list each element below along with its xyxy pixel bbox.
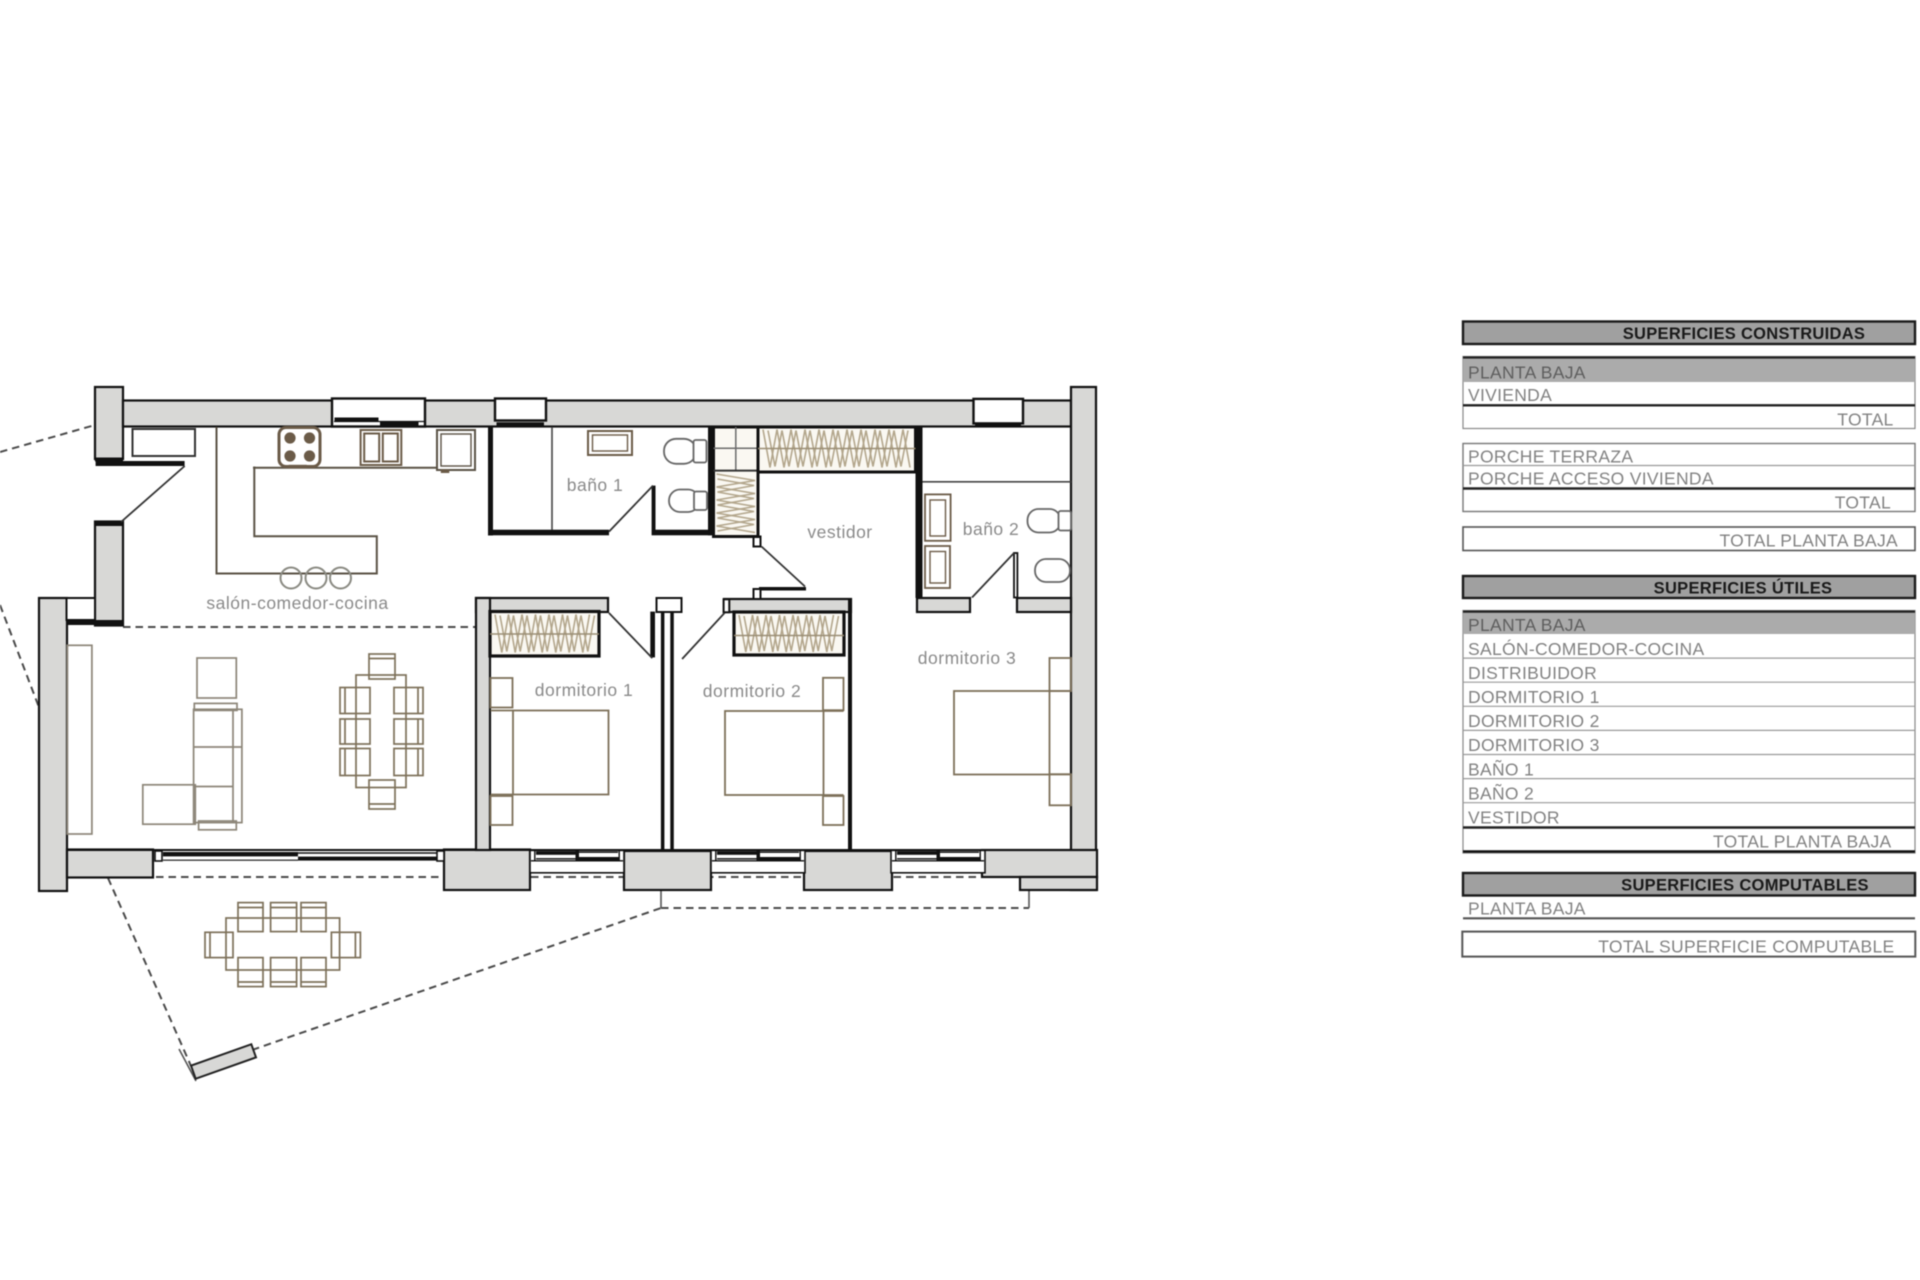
svg-text:BAÑO 1: BAÑO 1	[1468, 759, 1534, 780]
svg-text:TOTAL PLANTA BAJA: TOTAL PLANTA BAJA	[1719, 531, 1898, 551]
svg-text:vestidor: vestidor	[807, 522, 872, 542]
svg-text:TOTAL SUPERFICIE COMPUTABLE: TOTAL SUPERFICIE COMPUTABLE	[1598, 937, 1894, 957]
svg-text:PLANTA BAJA: PLANTA BAJA	[1468, 899, 1586, 919]
svg-text:dormitorio 1: dormitorio 1	[535, 680, 633, 700]
svg-text:dormitorio 2: dormitorio 2	[703, 681, 801, 701]
svg-text:SUPERFICIES CONSTRUIDAS: SUPERFICIES CONSTRUIDAS	[1623, 325, 1866, 343]
svg-text:SALÓN-COMEDOR-COCINA: SALÓN-COMEDOR-COCINA	[1468, 638, 1704, 659]
svg-text:DISTRIBUIDOR: DISTRIBUIDOR	[1468, 663, 1597, 683]
svg-text:DORMITORIO 3: DORMITORIO 3	[1468, 735, 1600, 755]
svg-text:DORMITORIO 2: DORMITORIO 2	[1468, 711, 1600, 731]
svg-text:salón-comedor-cocina: salón-comedor-cocina	[206, 593, 388, 613]
svg-text:dormitorio 3: dormitorio 3	[918, 648, 1016, 668]
svg-text:SUPERFICIES COMPUTABLES: SUPERFICIES COMPUTABLES	[1621, 877, 1869, 895]
svg-text:baño 1: baño 1	[567, 475, 624, 495]
svg-text:PORCHE ACCESO VIVIENDA: PORCHE ACCESO VIVIENDA	[1468, 469, 1714, 489]
svg-text:PLANTA BAJA: PLANTA BAJA	[1468, 363, 1586, 383]
svg-text:baño 2: baño 2	[963, 519, 1020, 539]
svg-text:PORCHE TERRAZA: PORCHE TERRAZA	[1468, 447, 1633, 467]
svg-text:TOTAL: TOTAL	[1835, 493, 1891, 513]
svg-text:BAÑO 2: BAÑO 2	[1468, 783, 1534, 804]
svg-text:SUPERFICIES ÚTILES: SUPERFICIES ÚTILES	[1654, 579, 1833, 598]
svg-text:PLANTA BAJA: PLANTA BAJA	[1468, 615, 1586, 635]
svg-text:VESTIDOR: VESTIDOR	[1468, 808, 1560, 828]
svg-text:TOTAL PLANTA BAJA: TOTAL PLANTA BAJA	[1713, 832, 1892, 852]
svg-text:DORMITORIO 1: DORMITORIO 1	[1468, 687, 1600, 707]
svg-text:VIVIENDA: VIVIENDA	[1468, 385, 1552, 405]
svg-text:TOTAL: TOTAL	[1837, 410, 1893, 430]
